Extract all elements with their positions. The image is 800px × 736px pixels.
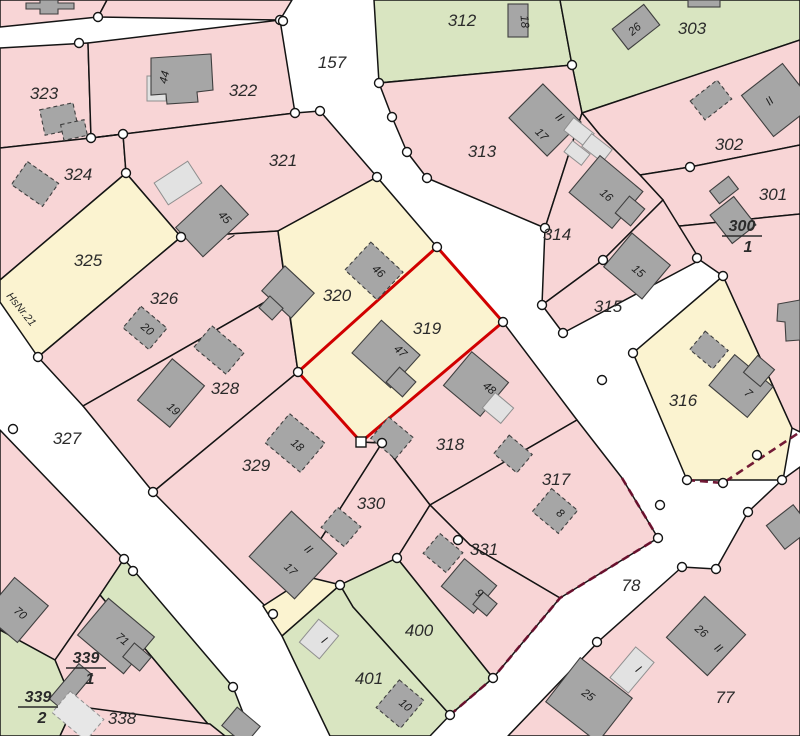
survey-point	[598, 376, 607, 385]
survey-point	[593, 638, 602, 647]
parcel-label-321: 321	[269, 151, 297, 170]
parcel-label-320: 320	[323, 286, 352, 305]
survey-point	[454, 536, 463, 545]
survey-point	[719, 272, 728, 281]
survey-point	[693, 254, 702, 263]
survey-point	[336, 581, 345, 590]
survey-point	[712, 565, 721, 574]
survey-point	[489, 674, 498, 683]
parcel-label-330: 330	[357, 494, 386, 513]
survey-point	[120, 555, 129, 564]
building-label-18-312: 18	[517, 15, 530, 29]
parcel-label-313: 313	[468, 142, 497, 161]
survey-point	[719, 479, 728, 488]
parcel-label-325: 325	[74, 251, 103, 270]
survey-point	[122, 169, 131, 178]
survey-point	[599, 256, 608, 265]
survey-point	[656, 501, 665, 510]
survey-point	[654, 534, 663, 543]
survey-point	[269, 610, 278, 619]
parcel-label-315: 315	[594, 297, 623, 316]
survey-point	[375, 79, 384, 88]
survey-point	[568, 61, 577, 70]
svg-text:339: 339	[73, 650, 100, 667]
parcel-label-322: 322	[229, 81, 258, 100]
svg-text:339: 339	[25, 689, 52, 706]
svg-text:1: 1	[86, 671, 95, 688]
survey-point	[294, 368, 303, 377]
survey-point	[291, 109, 300, 118]
survey-point	[393, 554, 402, 563]
survey-point-square	[356, 437, 366, 447]
survey-point	[403, 148, 412, 157]
survey-point	[87, 134, 96, 143]
survey-point	[94, 13, 103, 22]
parcel-label-319: 319	[413, 319, 442, 338]
parcel-label-302: 302	[715, 135, 744, 154]
survey-point	[119, 130, 128, 139]
parcel-label-401: 401	[355, 669, 383, 688]
map-canvas[interactable]: 157 327 78 312 303 323 322 321 313 302 3…	[0, 0, 800, 736]
survey-point	[499, 318, 508, 327]
survey-point	[753, 451, 762, 460]
parcel-label-316: 316	[669, 391, 698, 410]
survey-point	[34, 353, 43, 362]
survey-point	[446, 711, 455, 720]
survey-point	[378, 439, 387, 448]
svg-text:1: 1	[744, 239, 753, 256]
parcel-label-331: 331	[470, 540, 498, 559]
survey-point	[686, 163, 695, 172]
survey-point	[388, 113, 397, 122]
survey-point	[423, 174, 432, 183]
survey-point	[9, 425, 18, 434]
parcel-label-326: 326	[150, 289, 179, 308]
parcel-label-400: 400	[405, 621, 434, 640]
parcel-label-314: 314	[543, 225, 571, 244]
parcel-label-324: 324	[64, 165, 92, 184]
parcel-nw-b[interactable]	[98, 0, 292, 20]
survey-point	[75, 39, 84, 48]
parcel-label-77: 77	[716, 688, 735, 707]
parcel-label-317: 317	[542, 470, 571, 489]
road-label-157: 157	[318, 53, 347, 72]
survey-point	[373, 173, 382, 182]
survey-point	[229, 683, 238, 692]
survey-point	[316, 107, 325, 116]
road-label-78: 78	[622, 576, 641, 595]
survey-point	[778, 476, 787, 485]
parcel-label-323: 323	[30, 84, 59, 103]
survey-point	[683, 476, 692, 485]
parcel-label-318: 318	[436, 435, 465, 454]
survey-point	[279, 17, 288, 26]
parcel-label-328: 328	[211, 379, 240, 398]
survey-point	[433, 243, 442, 252]
survey-point	[629, 349, 638, 358]
parcel-label-303: 303	[678, 19, 707, 38]
survey-point	[559, 329, 568, 338]
survey-point	[744, 508, 753, 517]
svg-text:300: 300	[729, 218, 756, 235]
cadastral-map: 157 327 78 312 303 323 322 321 313 302 3…	[0, 0, 800, 736]
svg-text:2: 2	[37, 710, 47, 727]
parcel-label-329: 329	[242, 456, 271, 475]
parcel-label-338: 338	[108, 709, 137, 728]
parcel-label-301: 301	[759, 185, 787, 204]
survey-point	[177, 233, 186, 242]
building-fragment-303	[688, 0, 720, 7]
road-label-327: 327	[53, 429, 82, 448]
survey-point	[538, 301, 547, 310]
survey-point	[149, 488, 158, 497]
survey-point	[678, 563, 687, 572]
survey-point	[129, 567, 138, 576]
parcel-label-312: 312	[448, 11, 477, 30]
